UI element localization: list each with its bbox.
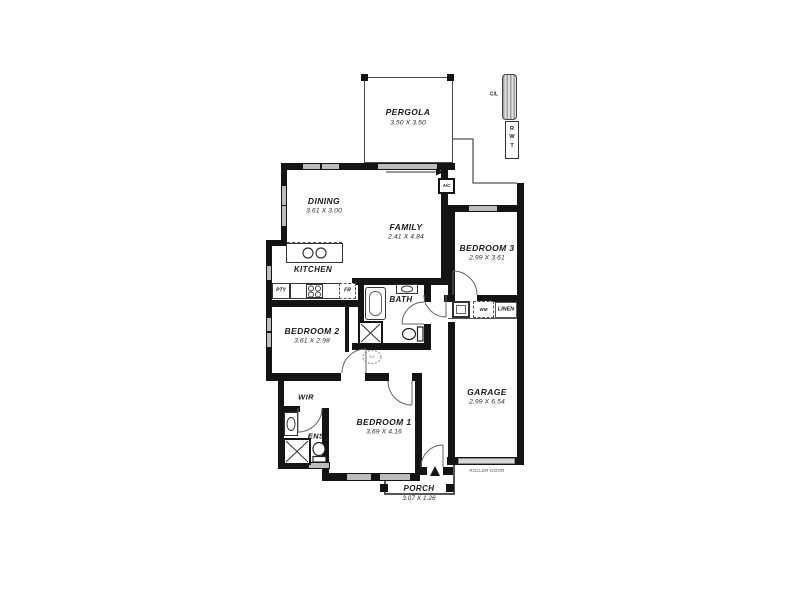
porch-label: PORCH [404,485,435,493]
ac-label: A/C [443,184,451,189]
ens-shower-x [286,441,308,462]
bedroom1-label: BEDROOM 1 [356,418,411,427]
door-swings [298,271,477,467]
ens-basin [287,418,295,431]
bedroom2-dims: 3.61 X 2.98 [294,339,330,346]
sliding-door-arrow [386,169,444,176]
eave-line [453,139,517,183]
fridge-label: FR [344,289,351,294]
bath-basin [402,286,413,292]
floor-plan: RWT [0,0,800,600]
family-label: FAMILY [390,223,423,232]
garage-dims: 2.99 X 6.54 [469,400,505,407]
bath-label: BATH [389,296,412,304]
kitchen-label: KITCHEN [294,266,332,274]
linen-label: LINEN [498,307,515,313]
pergola-label: PERGOLA [386,108,431,117]
ens-label: ENS [308,432,325,440]
skylight-label: S/L [369,355,376,359]
bedroom1-dims: 3.69 X 4.16 [366,430,402,437]
ens-toilet [313,443,326,463]
entry-door [421,445,443,467]
bedroom2-label: BEDROOM 2 [284,327,339,336]
bath-door [402,302,424,324]
bath-toilet [403,327,424,341]
roller-door-label: ROLLER-DOOR [469,469,504,474]
pantry-label: PTY [276,289,286,294]
pergola-dims: 3.50 X 3.50 [390,121,426,128]
family-dims: 2.41 X 4.84 [388,235,424,242]
clothesline-label: C/L [490,93,498,98]
bed3-door [453,271,477,295]
cooktop-burners [309,286,321,297]
porch-dims: 3.07 X 1.26 [402,496,435,502]
bath-shower-x [361,324,380,342]
wir-label: WIR [298,393,314,401]
kitchen-sink [303,248,326,258]
bed2-door [342,349,366,373]
ens-door [298,408,322,432]
bedroom3-dims: 2.99 X 3.61 [469,256,505,263]
bed1-door [388,381,412,405]
garage-label: GARAGE [467,388,507,397]
bedroom3-label: BEDROOM 3 [459,244,514,253]
wm-label: WM [480,308,488,313]
dining-dims: 3.61 X 3.00 [306,209,342,216]
hall-door [424,295,446,317]
dining-label: DINING [308,197,340,206]
